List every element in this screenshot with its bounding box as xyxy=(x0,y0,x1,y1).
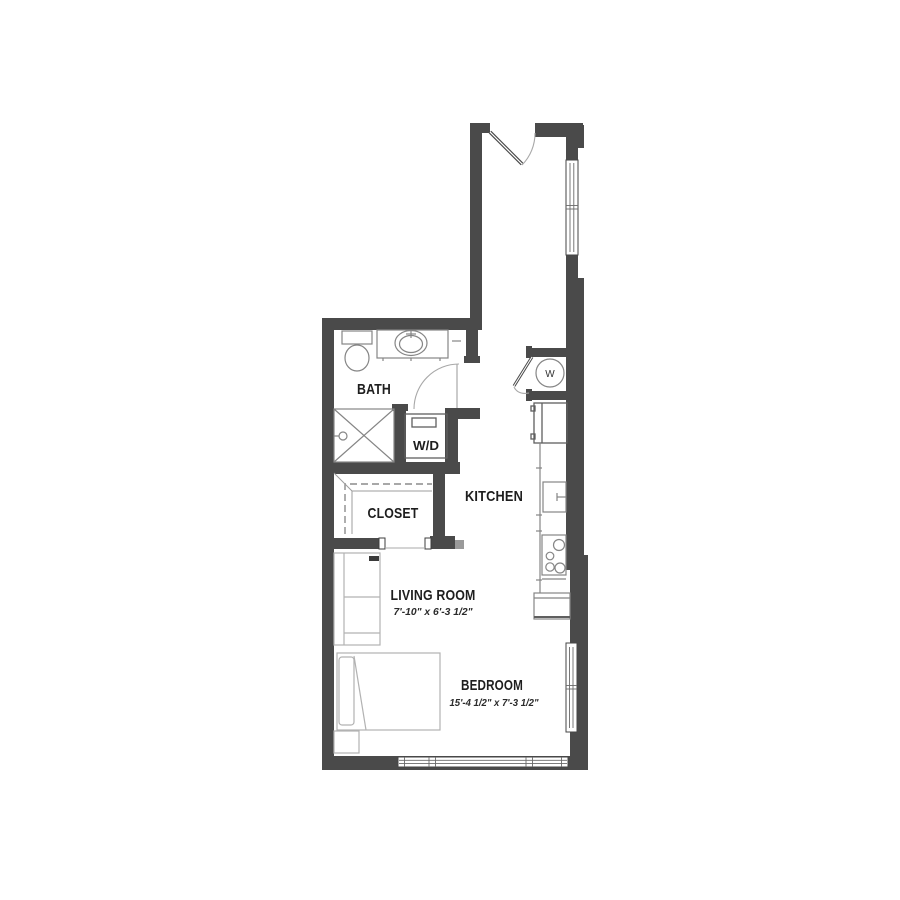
water-heater-top-stub xyxy=(528,348,566,357)
closet-bottom-wall xyxy=(322,538,379,549)
room-label-kitchen: KITCHEN xyxy=(465,488,523,505)
bath-door-jamb-cap xyxy=(464,356,480,363)
room-label-living-room: LIVING ROOM xyxy=(391,587,476,604)
closet-corner-wall xyxy=(430,536,455,549)
washer-dryer: W/D xyxy=(405,414,447,458)
window-frame xyxy=(398,757,568,767)
right-wall-flange-top xyxy=(576,125,584,148)
kitchen-sink xyxy=(543,482,566,512)
water-heater-bottom-stub xyxy=(528,391,566,400)
range xyxy=(542,535,566,579)
washer-dryer-panel xyxy=(412,418,436,427)
laundry-left-wall xyxy=(394,406,406,464)
closet-right-wall xyxy=(433,462,445,538)
water-heater-door xyxy=(514,357,532,393)
entry-corridor-wall xyxy=(470,123,482,330)
entry-side-window xyxy=(566,160,578,255)
closet-door-jamb-right xyxy=(425,538,431,549)
bedroom-bottom-window-band xyxy=(398,757,568,767)
burner xyxy=(546,563,554,571)
laundry-label: W/D xyxy=(413,439,439,453)
shower xyxy=(334,409,394,462)
pillow xyxy=(339,657,354,725)
burner xyxy=(546,552,554,560)
sofa xyxy=(334,553,380,645)
closet-rod-and-shelf xyxy=(334,473,432,534)
window-frame xyxy=(566,160,578,255)
sofa-table xyxy=(369,556,379,561)
refrigerator xyxy=(531,403,567,443)
walls xyxy=(322,123,588,770)
burner xyxy=(555,563,565,573)
floor-plan: W/D W xyxy=(0,0,900,900)
entry-door-swing xyxy=(522,133,535,165)
right-wall-flange-mid xyxy=(576,278,584,296)
floor-plan-page: W/D W xyxy=(0,0,900,900)
bedroom-side-window xyxy=(566,643,577,732)
closet-wall-end xyxy=(455,540,464,549)
water-heater-label: W xyxy=(545,369,555,380)
bath-top-wall xyxy=(322,318,482,330)
nightstand xyxy=(334,731,359,753)
room-dimensions-living-room: 7'-10" x 6'-3 1/2" xyxy=(394,606,474,618)
kitchen-counter xyxy=(536,443,542,593)
room-label-bath: BATH xyxy=(357,381,391,398)
furniture xyxy=(334,553,440,753)
burner xyxy=(554,540,565,551)
shower-drain xyxy=(339,432,347,440)
bath-door xyxy=(414,364,459,409)
bed xyxy=(337,653,440,730)
water-heater: W xyxy=(536,359,564,387)
toilet xyxy=(342,331,372,371)
entry-top-left-stub xyxy=(470,123,490,133)
water-heater-bottom-cap xyxy=(526,389,532,401)
vanity-sink xyxy=(377,330,461,361)
closet-door-jamb-left xyxy=(379,538,385,549)
right-wall-main xyxy=(566,296,584,570)
kitchen-lower-counter xyxy=(534,593,570,619)
room-dimensions-bedroom: 15'-4 1/2" x 7'-3 1/2" xyxy=(450,697,540,709)
bath-door-swing xyxy=(414,364,459,409)
window-frame xyxy=(566,643,577,732)
sheet-fold xyxy=(354,656,366,730)
bath-door-jamb-wall xyxy=(466,330,478,357)
room-label-closet: CLOSET xyxy=(368,505,419,522)
water-heater-top-cap xyxy=(526,346,532,358)
room-label-bedroom: BEDROOM xyxy=(461,677,523,694)
entry-door xyxy=(490,132,535,165)
